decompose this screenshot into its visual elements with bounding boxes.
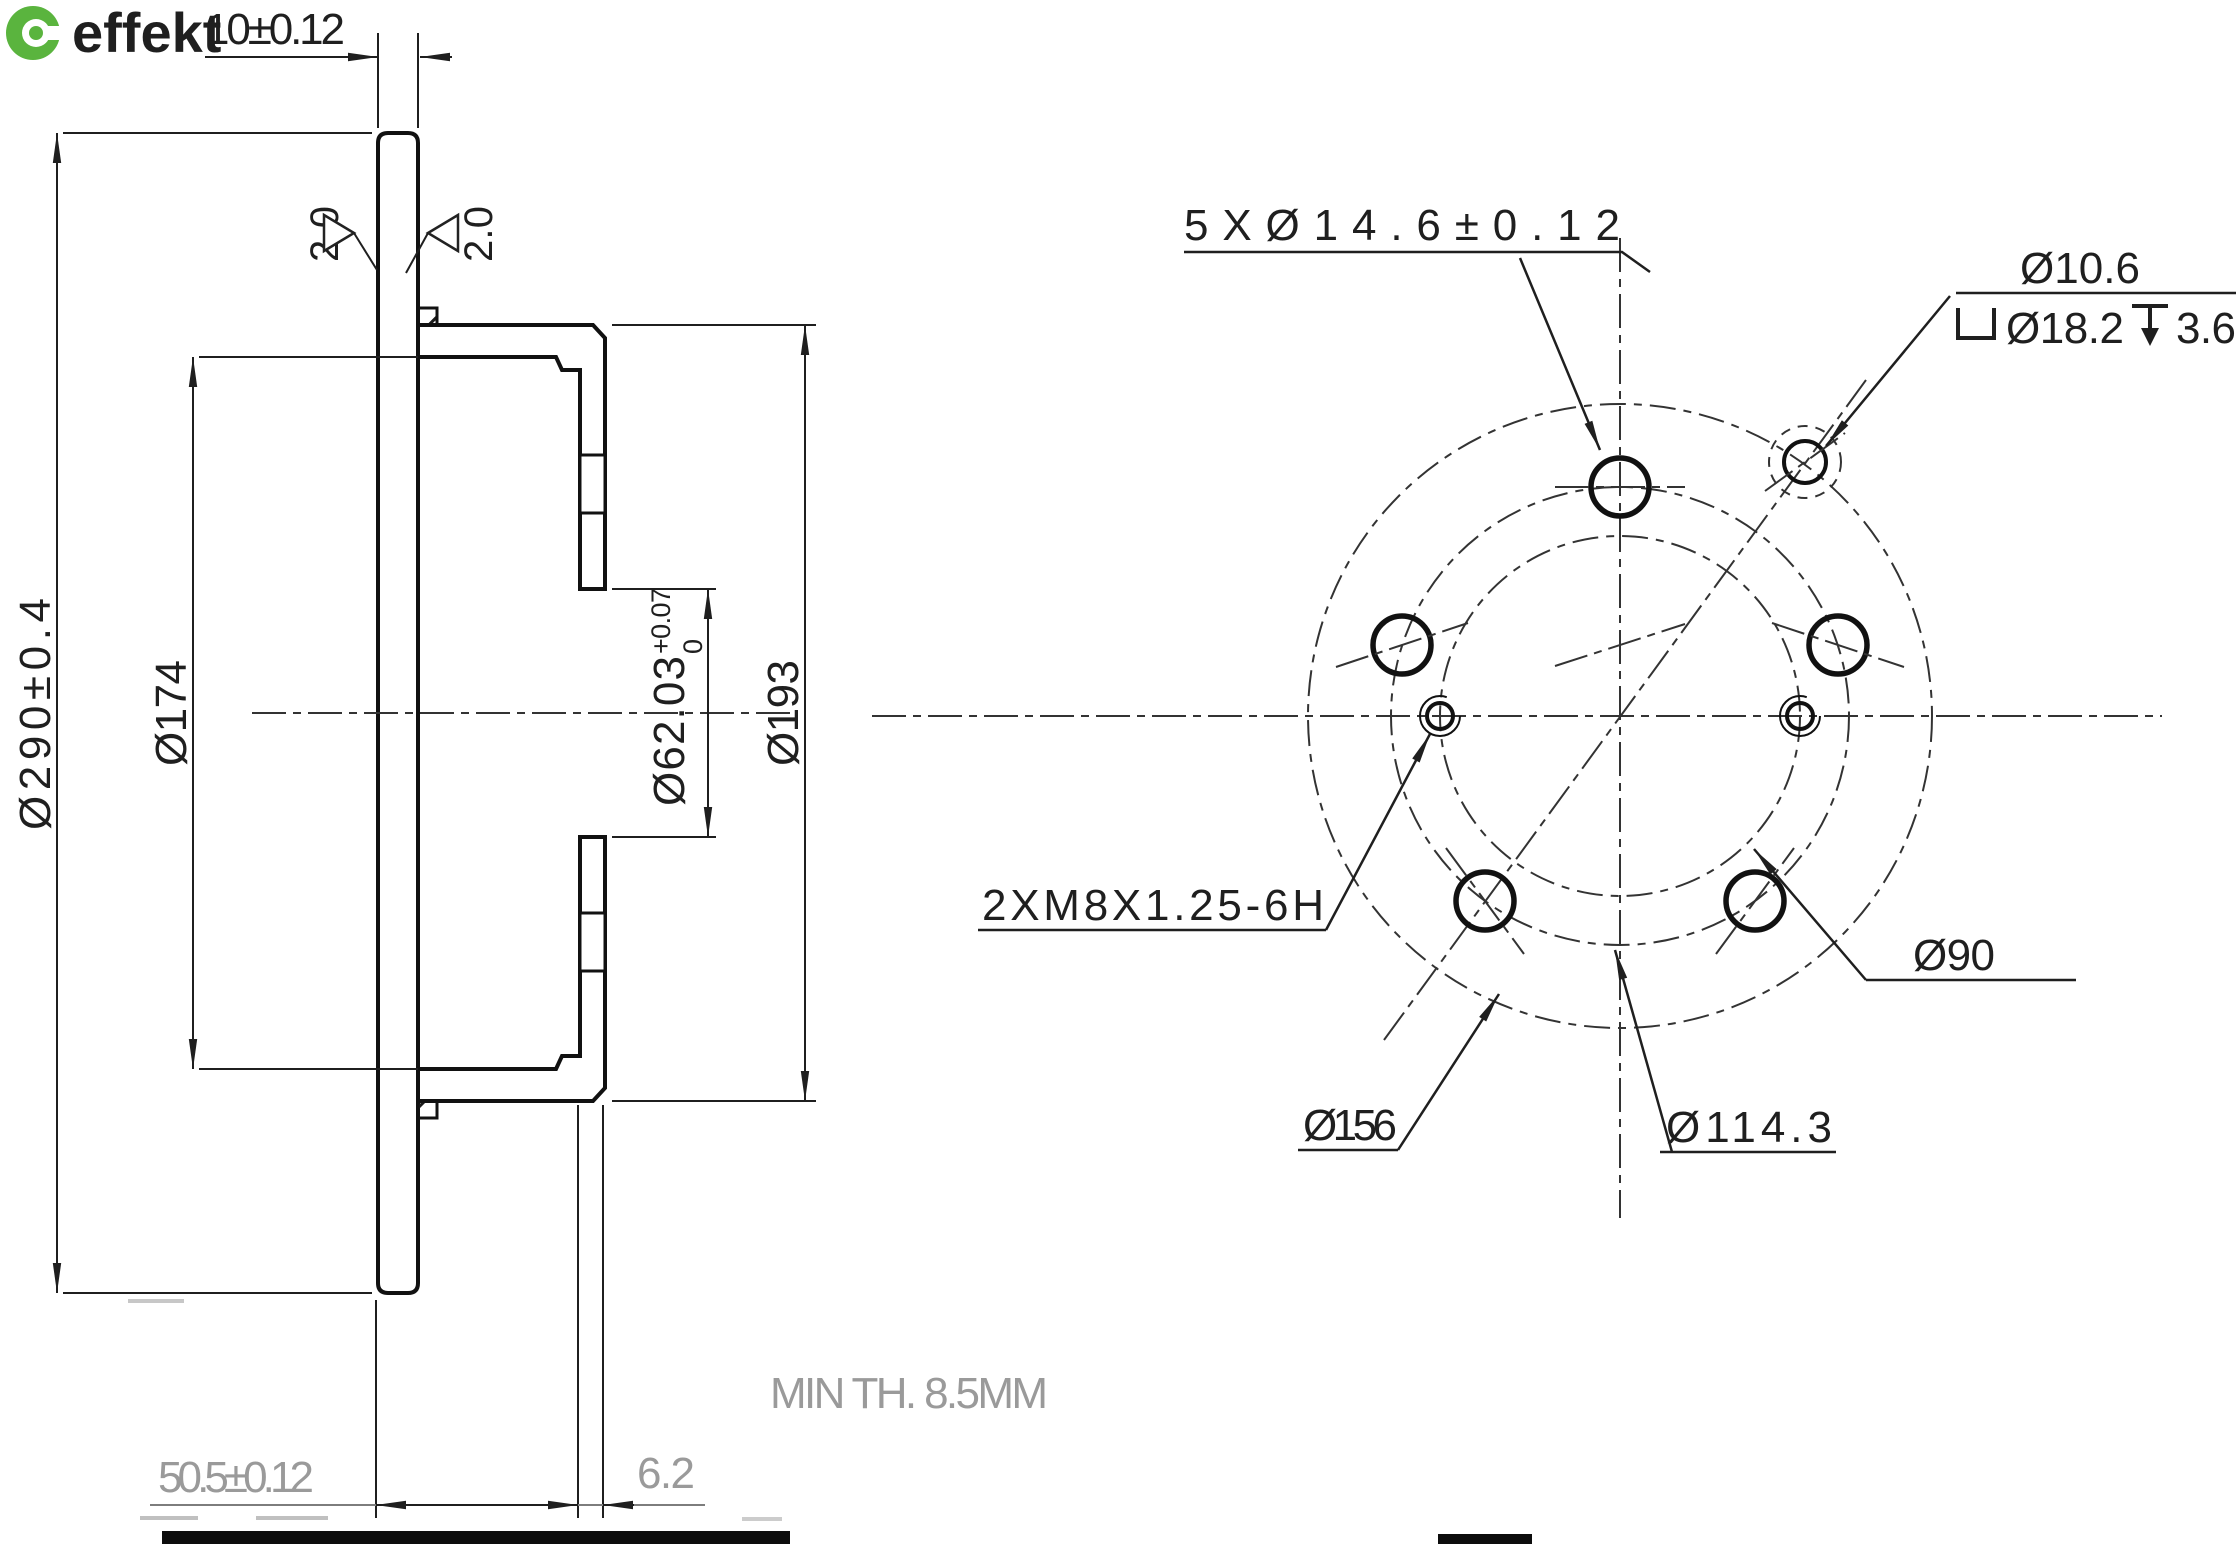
min-thickness-note: MIN TH. 8.5MM xyxy=(770,1369,1048,1418)
callout-counterbore-diameter: Ø18.2 xyxy=(2006,304,2124,353)
dim-outer-diameter: Ø290±0.4 xyxy=(11,598,60,830)
logo-text: effekt xyxy=(72,1,221,64)
depth-icon xyxy=(2132,306,2168,346)
dim-hat-outer-diameter: Ø193 xyxy=(759,660,808,766)
wrench-circle-icon xyxy=(6,6,64,60)
callout-thread-spec: 2XM8X1.25-6H xyxy=(982,881,1324,930)
callout-bolt-circle: Ø114.3 xyxy=(1666,1103,1832,1152)
callout-outer-ring: Ø156 xyxy=(1303,1101,1397,1150)
dim-hub-wall-thickness: 6.2 xyxy=(637,1449,695,1498)
hat-step-bottom xyxy=(418,1101,437,1118)
hat-section-top xyxy=(418,325,605,589)
side-view-dimensions: 10±0.12 2.0 2.0 Ø290±0.4 Ø174 Ø193 xyxy=(11,5,1048,1518)
callout-counterbore-depth: 3.6 xyxy=(2176,304,2236,353)
callout-bolt-holes: 5XØ14.6±0.12 xyxy=(1184,201,1620,250)
hat-section-bottom xyxy=(418,837,605,1101)
logo: effekt xyxy=(6,1,221,64)
dim-hat-inner-diameter: Ø174 xyxy=(147,660,196,766)
chamfer-callout-left: 2.0 xyxy=(303,206,377,270)
dim-plate-thickness: 10±0.12 xyxy=(205,5,345,54)
callout-screw-hole: Ø10.6 xyxy=(2020,244,2140,293)
front-view xyxy=(872,238,2162,1218)
counterbore-icon xyxy=(1958,308,1994,338)
dim-bore-diameter-group: Ø62.03 +0.07 0 xyxy=(645,588,708,806)
bolt-hole-section-top xyxy=(580,455,605,513)
dim-overall-height: 50.5±0.12 xyxy=(158,1453,314,1502)
hat-step-top xyxy=(418,308,437,325)
technical-drawing: effekt 10±0.12 2.0 2.0 xyxy=(0,0,2240,1544)
dim-bore-tol-lower: 0 xyxy=(678,639,708,654)
chamfer-callout-right: 2.0 xyxy=(406,206,501,273)
dim-chamfer-right: 2.0 xyxy=(457,206,501,262)
dim-bore-tol-upper: +0.07 xyxy=(646,588,676,654)
front-view-callouts: 5XØ14.6±0.12 Ø10.6 Ø18.2 3.6 2XM8X1.25-6… xyxy=(978,201,2236,1152)
bolt-hole-section-bottom xyxy=(580,913,605,971)
dim-bore-diameter: Ø62.03 xyxy=(645,656,694,806)
callout-pilot-circle: Ø90 xyxy=(1913,931,1995,980)
scan-artifacts xyxy=(128,1299,1532,1544)
side-section-view xyxy=(252,133,795,1293)
